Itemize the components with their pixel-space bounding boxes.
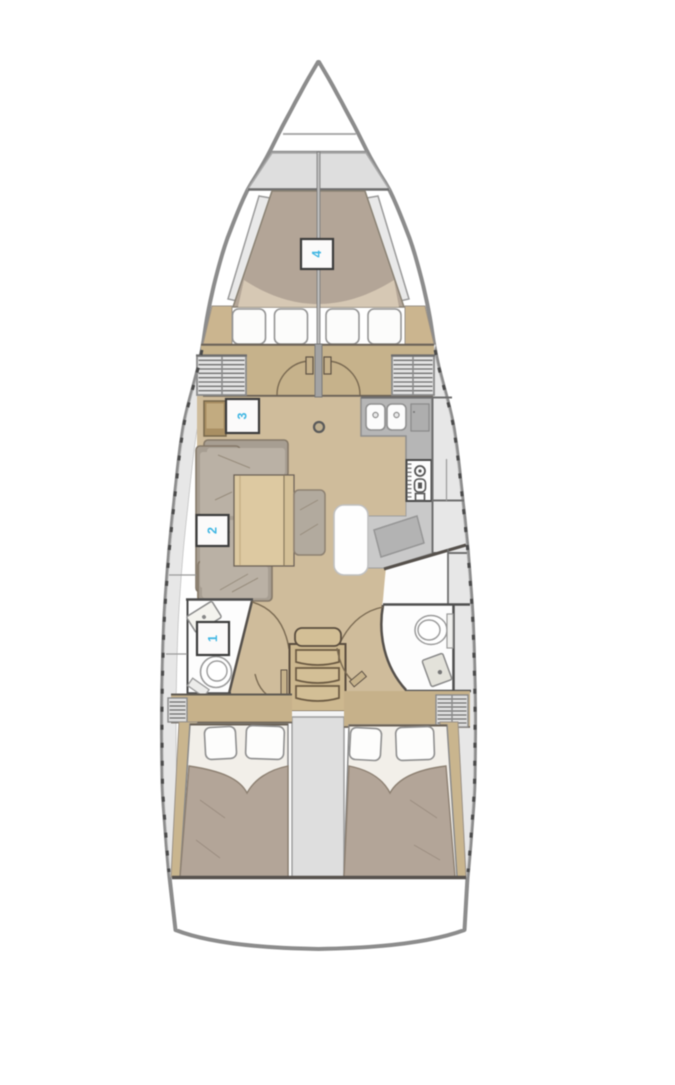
svg-text:3: 3 xyxy=(236,412,250,419)
svg-text:1: 1 xyxy=(206,635,220,642)
svg-text:4: 4 xyxy=(310,250,324,257)
svg-text:2: 2 xyxy=(206,527,220,534)
